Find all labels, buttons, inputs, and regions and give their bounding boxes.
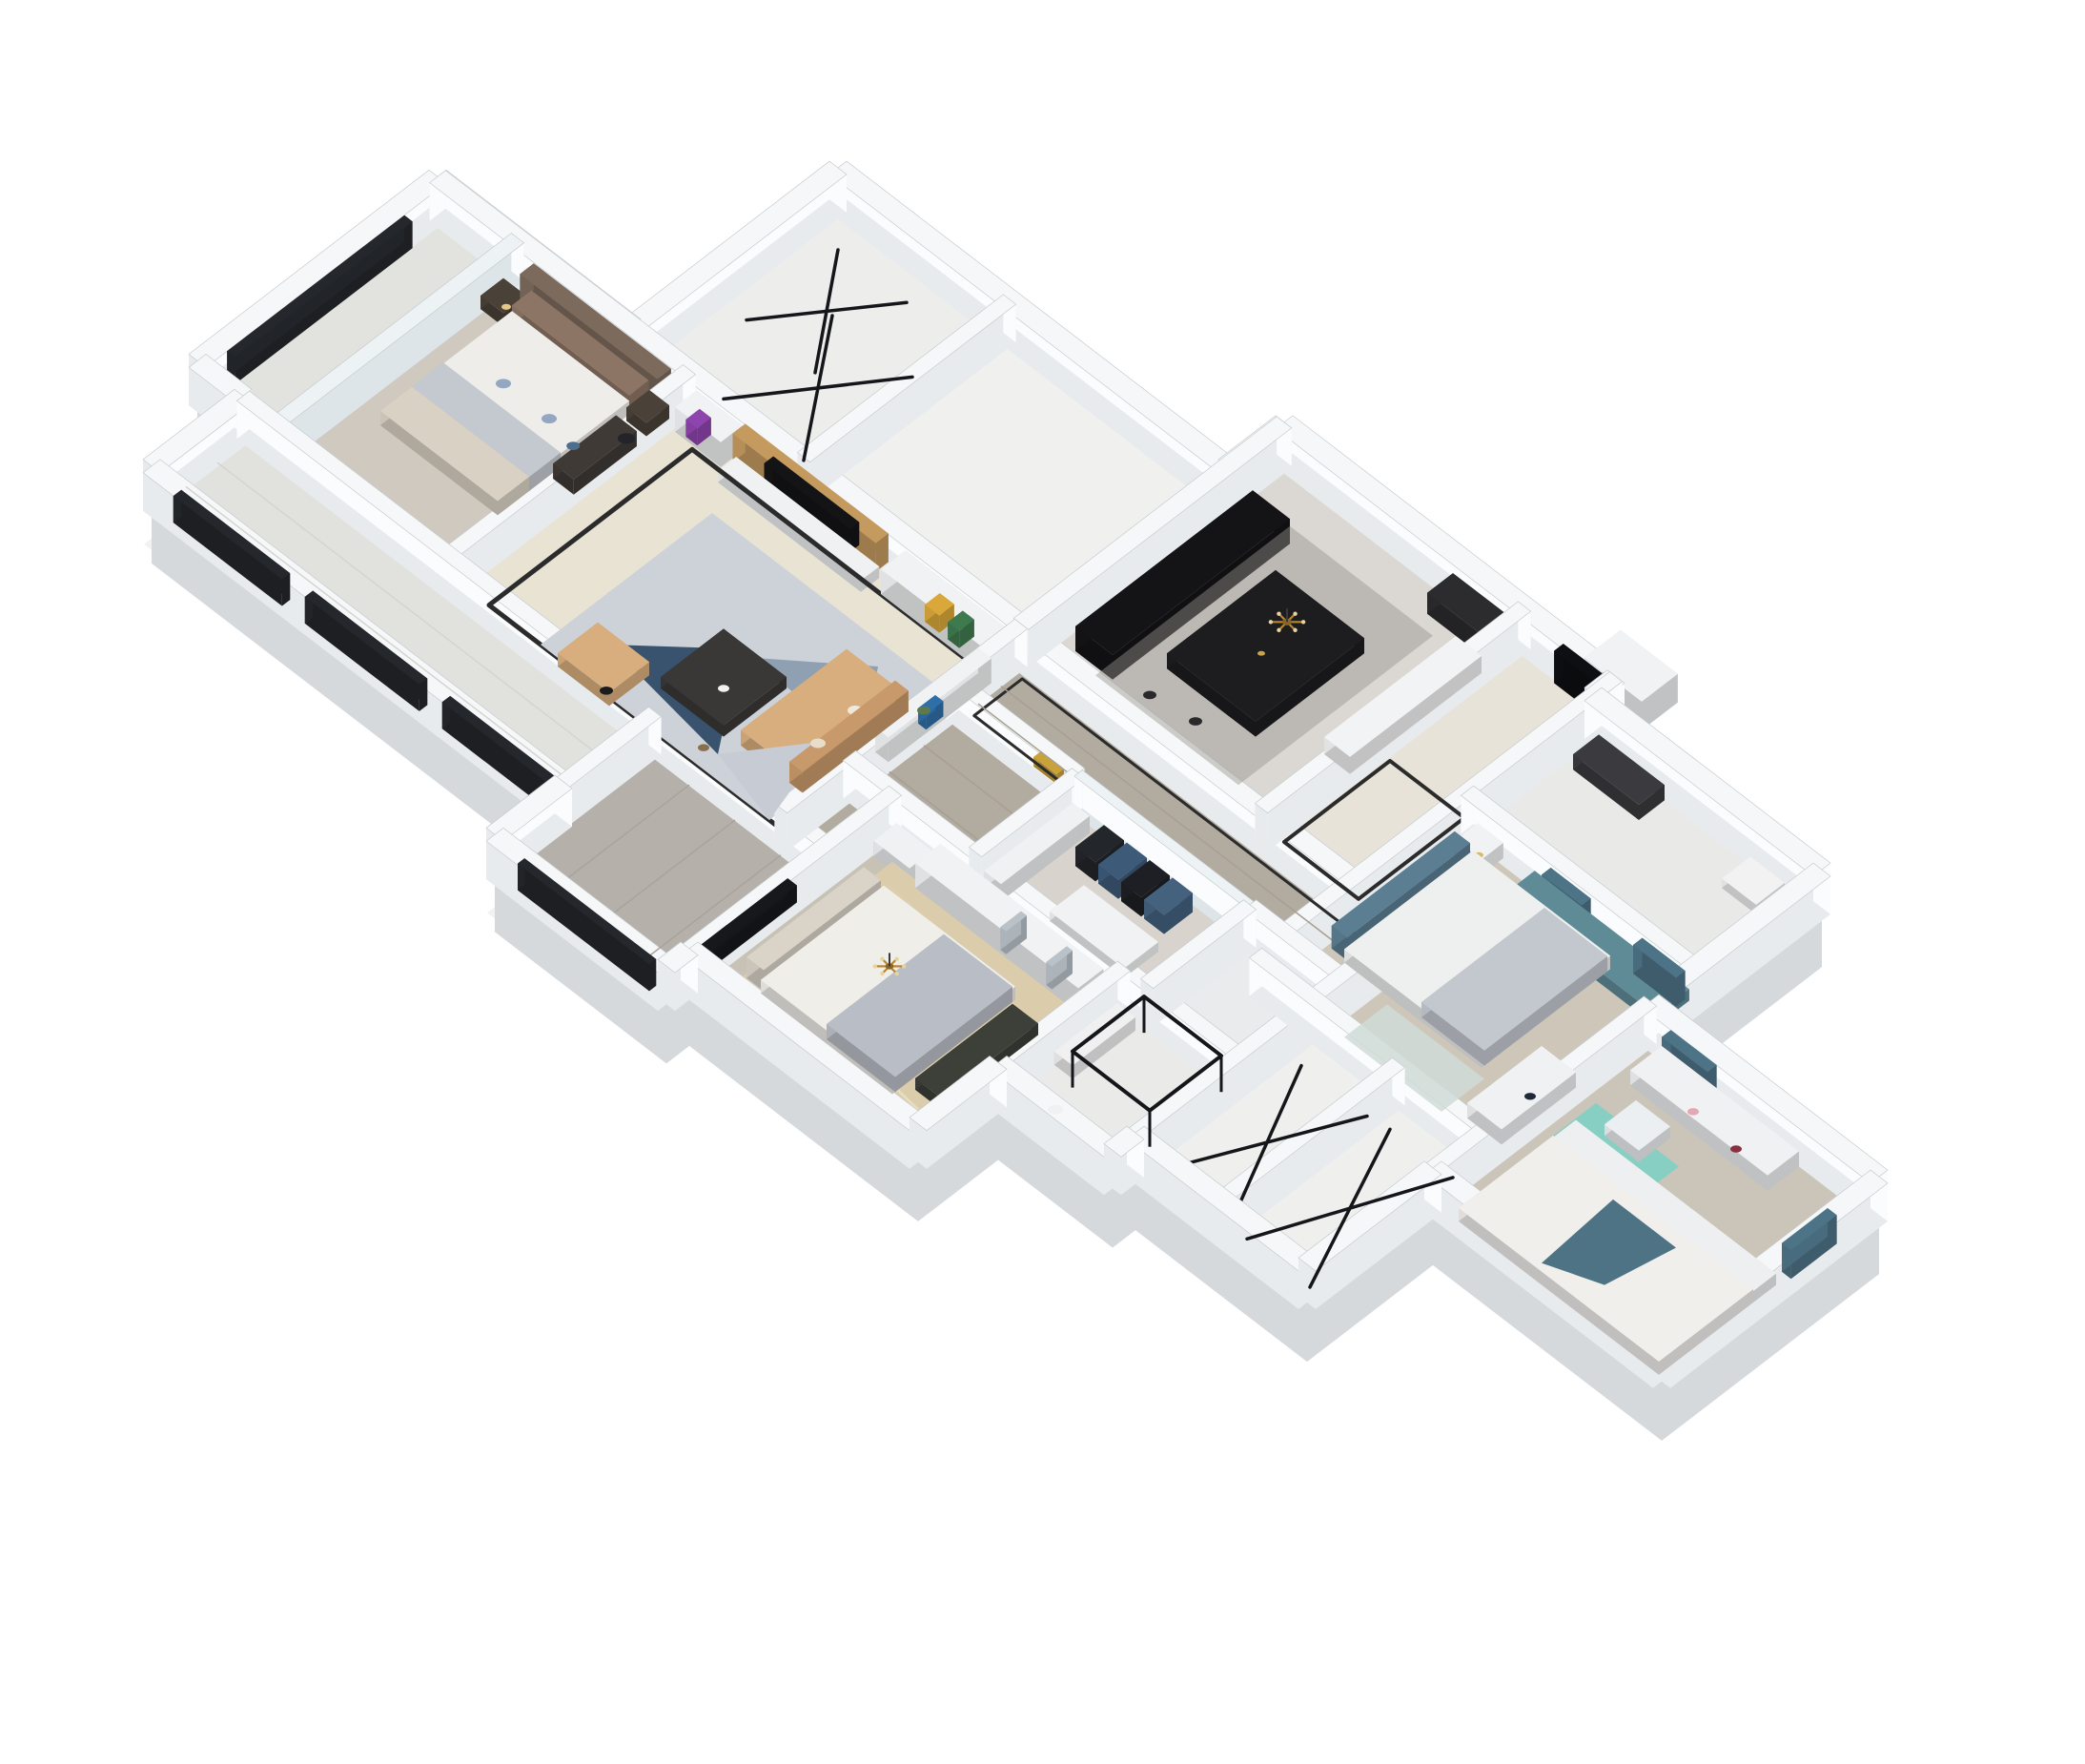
bedw-lamp <box>501 304 511 310</box>
dining-chair-2 <box>1143 691 1156 700</box>
bedw-pillow-blue-1 <box>496 379 511 388</box>
bedw-round-mirror <box>618 433 635 443</box>
living-floorlamp <box>600 687 613 695</box>
floor-plan-render-page <box>0 0 2085 1764</box>
bed2-laptop-pink <box>1687 1108 1699 1115</box>
bed2-bag <box>1730 1145 1742 1152</box>
dining-decor <box>1257 651 1265 656</box>
living-plant <box>917 707 930 715</box>
dining-chair-1 <box>1189 717 1202 726</box>
bedw-pillow-blue-2 <box>542 414 557 423</box>
masterbath-toilet <box>1048 1105 1063 1115</box>
bed1-laptop <box>1524 1093 1536 1099</box>
sofa-pillow-2 <box>810 739 826 749</box>
bedw-chair <box>566 441 580 450</box>
living-sidetable <box>698 744 709 750</box>
apartment-3d-floor-plan <box>0 0 2085 1764</box>
coffee-table-magazine <box>718 685 729 691</box>
